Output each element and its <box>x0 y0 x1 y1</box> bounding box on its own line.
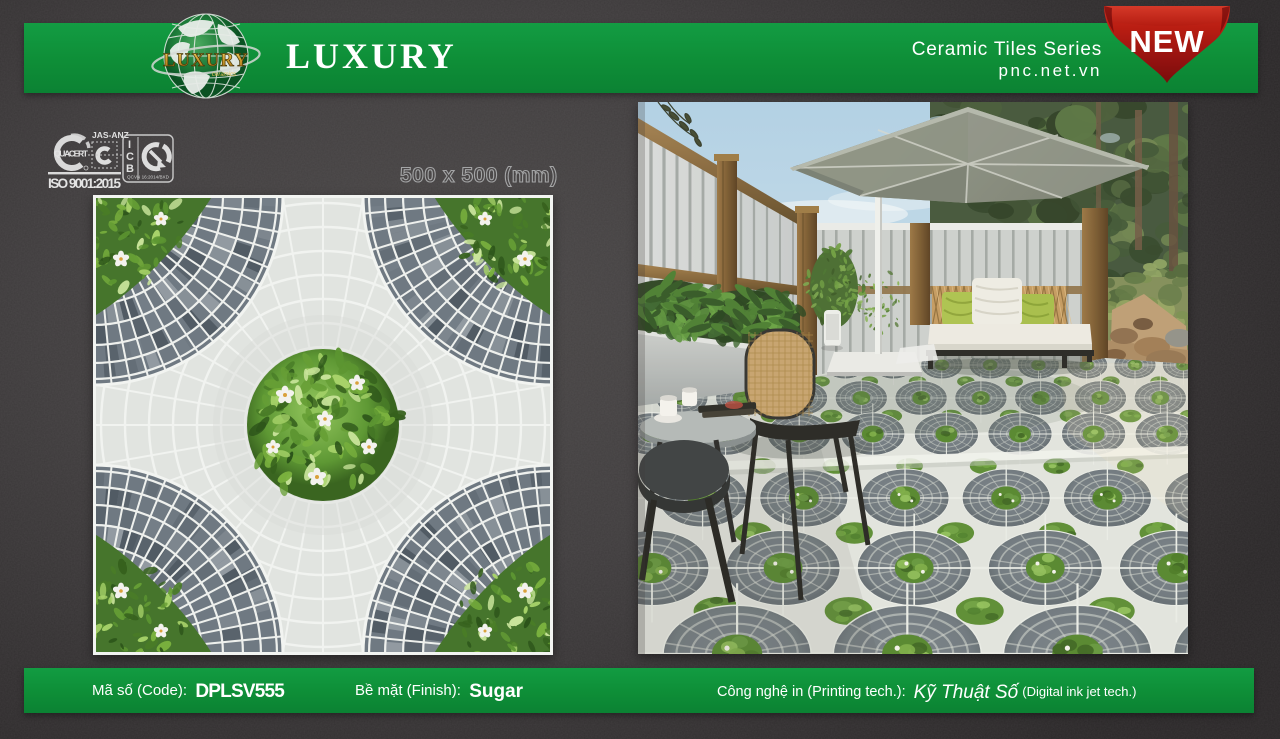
svg-text:B: B <box>126 163 134 175</box>
svg-text:QCVN 16:2014/BXD: QCVN 16:2014/BXD <box>127 175 170 180</box>
svg-text:LUXURY: LUXURY <box>163 51 249 71</box>
svg-text:NEW: NEW <box>1129 24 1204 59</box>
svg-text:ceramics: ceramics <box>212 72 236 78</box>
svg-text:I: I <box>128 139 131 151</box>
svg-text:ISO 9001:2015: ISO 9001:2015 <box>48 176 121 191</box>
svg-text:QUACERT: QUACERT <box>54 149 89 159</box>
svg-text:C: C <box>126 151 134 163</box>
